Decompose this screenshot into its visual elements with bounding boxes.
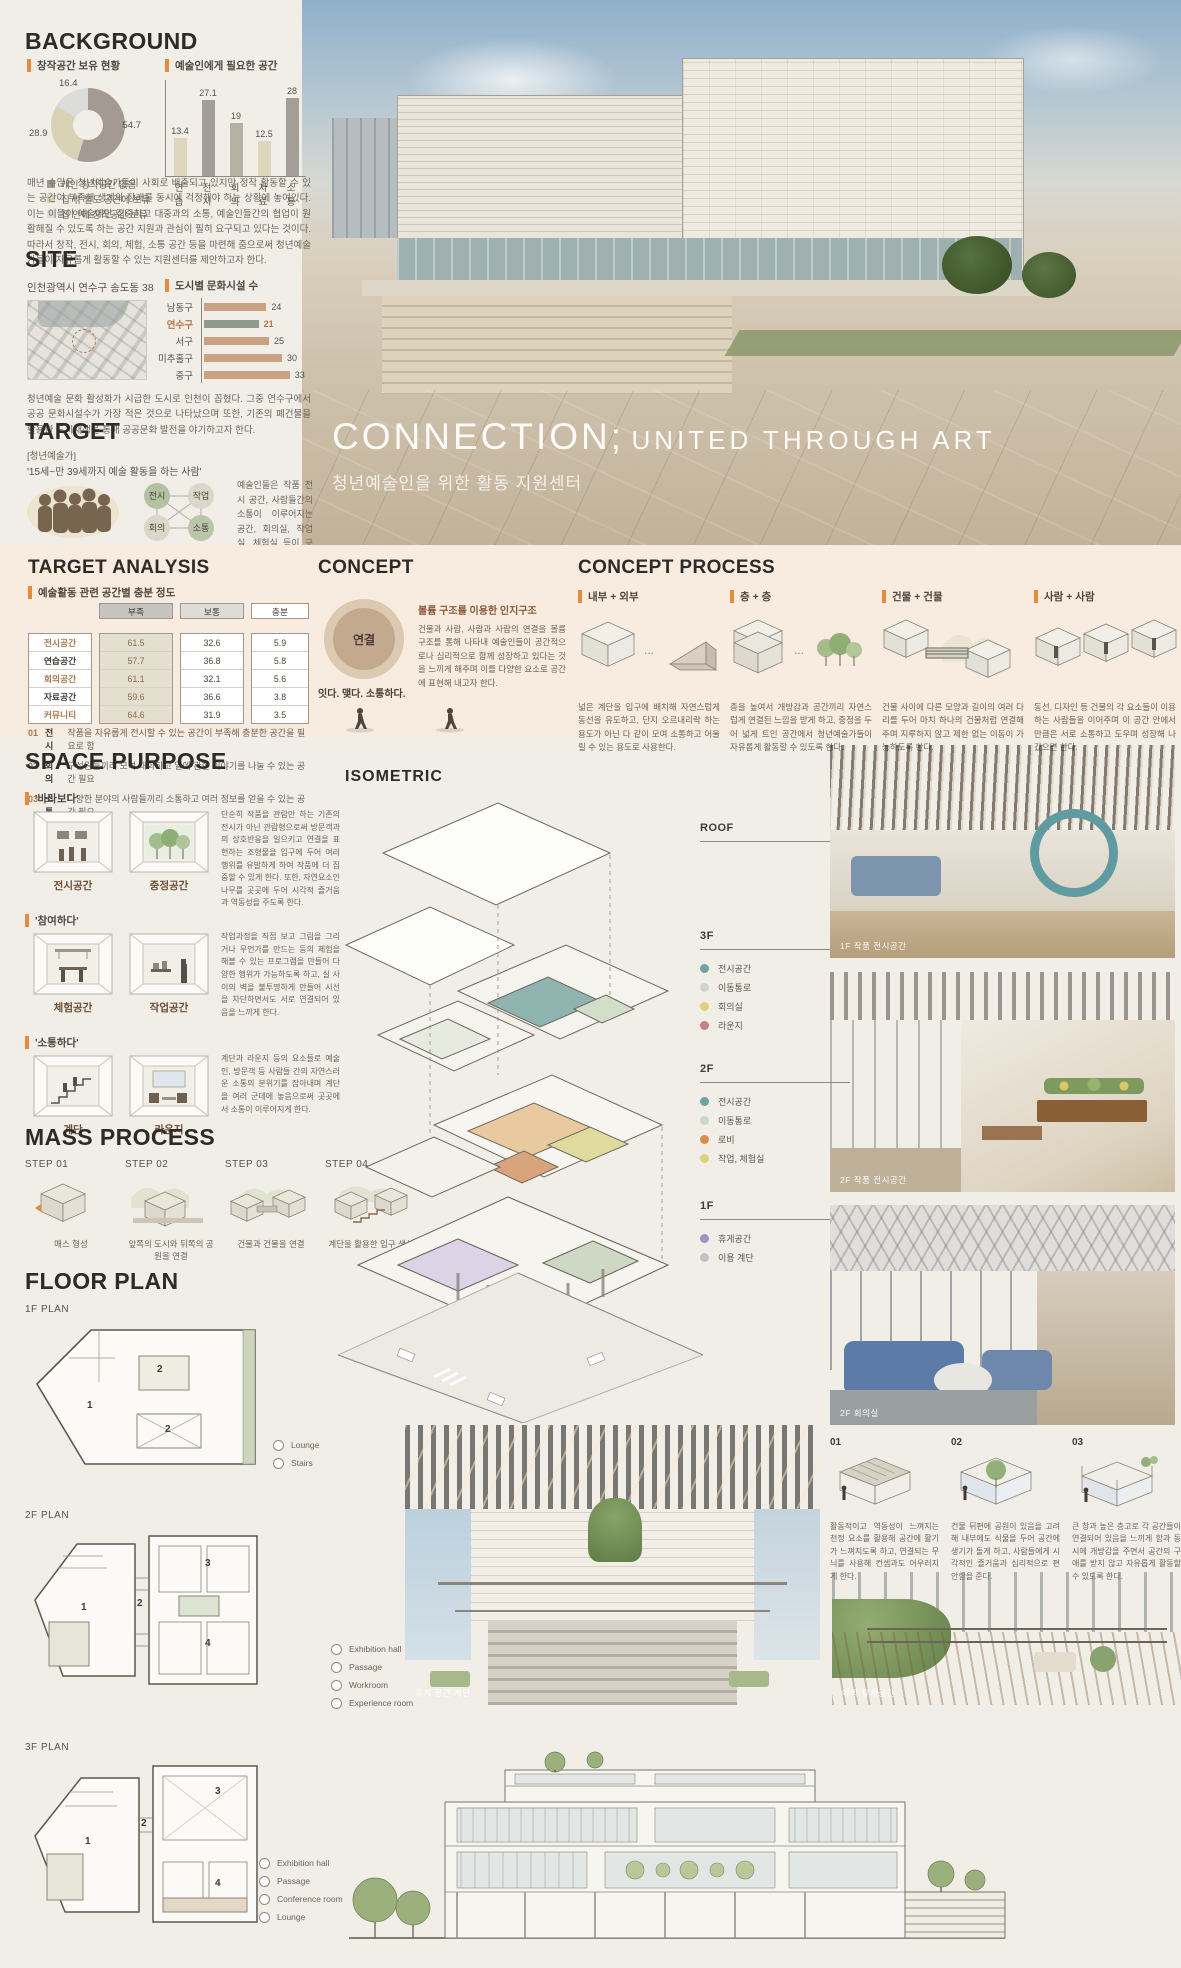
plan-number: 2 — [165, 1424, 171, 1435]
label-marker — [25, 1036, 29, 1049]
label-marker — [882, 590, 886, 603]
group-text: 작업과정을 직접 보고 그림을 그리거나 무언가를 만드는 등의 체험을 해볼 … — [221, 931, 340, 1019]
legend-dot — [700, 1253, 709, 1262]
needed-chart-label: 예술인에게 필요한 공간 — [165, 58, 315, 73]
facility-bar-chart: 남동구24연수구21서구25미추홀구30중구33 — [155, 298, 315, 383]
plan-legend-icon — [259, 1894, 270, 1905]
plan-legend-icon — [331, 1680, 342, 1691]
site-marker — [72, 329, 96, 353]
step-label: STEP 01 — [25, 1159, 117, 1170]
plan-legend-label: Lounge — [277, 1912, 305, 1922]
bar-rect — [202, 100, 215, 176]
concept-process-title: CONCEPT PROCESS — [578, 557, 1178, 579]
level-name: ROOF — [700, 822, 734, 834]
room-sketch-drawing — [33, 811, 113, 878]
plan-legend-label: Passage — [349, 1662, 382, 1672]
process-item-label: 건물 + 건물 — [882, 589, 1024, 604]
facility-bar — [204, 371, 290, 379]
facility-bar-row: 서구25 — [155, 332, 315, 349]
bar-rect — [258, 141, 271, 176]
legend-dot — [700, 1135, 709, 1144]
table-cell: 36.8 — [181, 652, 243, 670]
table-column: 5.95.85.63.83.5 — [251, 633, 309, 724]
legend-dot — [700, 1234, 709, 1243]
detail-diagram — [830, 1454, 939, 1515]
process-text: 넓은 계단을 입구에 배치해 자연스럽게 동선을 유도하고, 단지 오르내리락 … — [578, 701, 720, 755]
svg-text:회의: 회의 — [149, 523, 166, 533]
plan-legend-icon — [331, 1698, 342, 1709]
legend-dot — [700, 1154, 709, 1163]
plan-1f-label: 1F PLAN — [25, 1304, 69, 1315]
svg-text:...: ... — [794, 643, 804, 657]
concept-process-item: 층 + 층 ... 층을 높여서 개방감과 공간끼리 자연스럽게 연결된 느낌을… — [730, 589, 872, 755]
process-label-text: 층 + 층 — [740, 589, 771, 604]
concept-paragraph: 건물과 사람, 사람과 사람의 연결을 볼륨 구조를 통해 나타내 예술인들이 … — [418, 623, 566, 690]
process-item-label: 층 + 층 — [730, 589, 872, 604]
mass-step: STEP 01 매스 형성 — [25, 1159, 117, 1263]
group-quote-label: '소통하다' — [25, 1035, 340, 1050]
section-space-purpose: SPACE PURPOSE '바라보다' 전시공간 중정공간단순히 작품을 관람… — [25, 748, 340, 1135]
level-name: 3F — [700, 930, 714, 942]
table-cell: 61.1 — [100, 670, 172, 688]
photo-exhibition-1f: 1F 작품 전시공간 — [830, 745, 1175, 958]
plan-legend-label: Passage — [277, 1876, 310, 1886]
plan-legend-item: Exhibition hall — [331, 1640, 413, 1658]
process-diagram: ... — [730, 618, 872, 689]
photo-atrium-stairs: 휴게 공간 계단 — [405, 1425, 820, 1705]
space-purpose-group: '소통하다' 계단 라운지계단과 라운지 등의 요소들로 예술인, 방문객 등 … — [25, 1035, 340, 1135]
step-diagram — [25, 1178, 117, 1235]
room-label: 체험공간 — [33, 1000, 113, 1015]
label-marker — [25, 792, 29, 805]
space-purpose-group: '참여하다' 체험공간 작업공간작업과정을 직접 보고 그림을 그리거나 무언가… — [25, 913, 340, 1013]
step-label: STEP 03 — [225, 1159, 317, 1170]
photo-exhibition-2f: 2F 작품 전시공간 — [830, 972, 1175, 1192]
facility-category: 남동구 — [155, 300, 201, 314]
label-marker — [27, 59, 31, 72]
row-label: 자료공간 — [29, 688, 91, 706]
concept-process-item: 내부 + 외부 ... 넓은 계단을 입구에 배치해 자연스럽게 동선을 유도하… — [578, 589, 720, 755]
plan-number: 4 — [205, 1638, 211, 1649]
legend-label: 전시공간 — [718, 1095, 751, 1108]
plan-3f-label: 3F PLAN — [25, 1742, 69, 1753]
room-label: 작업공간 — [129, 1000, 209, 1015]
concept-process-items: 내부 + 외부 ... 넓은 계단을 입구에 배치해 자연스럽게 동선을 유도하… — [578, 589, 1178, 755]
donut-value-1: 54.7 — [123, 120, 142, 131]
facility-value: 33 — [295, 370, 305, 380]
legend-dot — [700, 1116, 709, 1125]
process-label-text: 내부 + 외부 — [588, 589, 639, 604]
level-name: 2F — [700, 1063, 714, 1075]
hero-lawn — [724, 330, 1181, 356]
section-site: SITE 인천광역시 연수구 송도동 38 도시별 문화시설 수 남동구24연수… — [25, 246, 313, 273]
facility-bar-track: 21 — [201, 315, 315, 332]
facility-chart-label: 도시별 문화시설 수 — [165, 278, 258, 293]
sufficiency-table: 부족보통충분전시공간연습공간회의공간자료공간커뮤니티61.557.761.159… — [28, 603, 313, 724]
step-caption: 매스 형성 — [25, 1239, 117, 1251]
legend-dot — [700, 964, 709, 973]
plan-legend-label: Conference room — [277, 1894, 343, 1904]
plan-2f-legend: Exhibition hallPassageWorkroomExperience… — [331, 1640, 413, 1712]
facility-bar — [204, 320, 259, 328]
table-header: 부족 — [99, 603, 173, 619]
background-title: BACKGROUND — [25, 28, 313, 55]
room-sketch-drawing — [129, 811, 209, 878]
plan-legend-label: Stairs — [291, 1458, 313, 1468]
ownership-donut-chart — [51, 88, 125, 162]
plan-3f-drawing: 1 2 3 4 — [29, 1758, 261, 1935]
bar-value: 19 — [231, 111, 241, 121]
people-icon — [25, 482, 121, 545]
group-quote-label: '바라보다' — [25, 791, 340, 806]
isometric-drawing — [338, 795, 703, 1428]
detail-diagram — [1072, 1454, 1181, 1515]
plan-number: 1 — [87, 1400, 93, 1411]
facility-bar-track: 24 — [201, 298, 315, 315]
room-sketch: 작업공간 — [129, 933, 209, 1015]
plan-legend-icon — [331, 1644, 342, 1655]
plan-legend-item: Workroom — [331, 1676, 413, 1694]
detail-item: 01 활동적이고 역동성이 느껴지는 천정 요소를 활용해 공간에 활기가 느껴… — [830, 1437, 939, 1583]
table-corner-spacer — [28, 603, 92, 626]
facility-category: 중구 — [155, 368, 201, 382]
legend-label: 이동통로 — [718, 1114, 751, 1127]
process-diagram — [1034, 618, 1176, 689]
section-target-analysis: TARGET ANALYSIS 예술활동 관련 공간별 충분 정도 부족보통충분… — [28, 557, 313, 600]
room-sketch-drawing — [33, 1055, 113, 1122]
plan-legend-label: Workroom — [349, 1680, 388, 1690]
group-quote: '소통하다' — [35, 1035, 79, 1050]
site-title: SITE — [25, 246, 313, 273]
photo-caption: 야외 휴게공간 — [842, 1687, 895, 1699]
concept-process-item: 건물 + 건물 건물 사이에 다른 모양과 길이의 여러 다리를 두어 마치 하… — [882, 589, 1024, 755]
level-rule — [700, 949, 850, 950]
room-sketch: 전시공간 — [33, 811, 113, 893]
bar-rect — [230, 123, 243, 176]
plan-number: 2 — [157, 1364, 163, 1375]
plan-2f-label: 2F PLAN — [25, 1510, 69, 1521]
plan-legend-icon — [259, 1876, 270, 1887]
plan-number: 2 — [137, 1598, 143, 1609]
plan-1f-drawing: 1 2 2 — [29, 1322, 261, 1477]
concept-tagline: 잇다. 맺다. 소통하다. — [318, 685, 406, 700]
facility-bar-row: 남동구24 — [155, 298, 315, 315]
plan-legend-item: Passage — [331, 1658, 413, 1676]
hero-tree-1 — [942, 236, 1012, 294]
target-analysis-label: 예술활동 관련 공간별 충분 정도 — [28, 585, 313, 600]
photo-caption: 2F 작품 전시공간 — [840, 1174, 907, 1186]
facility-value: 21 — [264, 319, 274, 329]
facility-category: 미추홀구 — [155, 351, 201, 365]
plan-legend-item: Conference room — [259, 1890, 343, 1908]
plan-legend-label: Exhibition hall — [349, 1644, 401, 1654]
section-background: BACKGROUND 창작공간 보유 현황 54.7 28.9 16.4 개인 … — [25, 28, 313, 55]
plan-number: 1 — [85, 1836, 91, 1847]
process-item-label: 내부 + 외부 — [578, 589, 720, 604]
row-label: 연습공간 — [29, 652, 91, 670]
group-quote: '참여하다' — [35, 913, 79, 928]
isometric-title: ISOMETRIC — [345, 768, 443, 786]
room-label: 전시공간 — [33, 878, 113, 893]
plan-legend-label: Experience room — [349, 1698, 413, 1708]
facility-bar-row: 미추홀구30 — [155, 349, 315, 366]
plan-legend-icon — [273, 1440, 284, 1451]
site-map — [27, 300, 147, 380]
level-rule — [700, 1082, 850, 1083]
facility-bar — [204, 337, 269, 345]
bar-rect — [286, 98, 299, 176]
label-marker — [1034, 590, 1038, 603]
step-label: STEP 02 — [125, 1159, 217, 1170]
concept-circle: 연결 — [324, 599, 404, 679]
target-bracket: [청년예술가] — [27, 448, 76, 462]
room-sketch: 체험공간 — [33, 933, 113, 1015]
detail-item: 03 큰 창과 높은 층고로 각 공간들이 연결되어 있음을 느끼게 함과 동시… — [1072, 1437, 1181, 1583]
room-sketch-drawing — [129, 1055, 209, 1122]
row-label: 전시공간 — [29, 634, 91, 652]
legend-label: 전시공간 — [718, 962, 751, 975]
process-label-text: 사람 + 사람 — [1044, 589, 1095, 604]
hero-title-sub: UNITED THROUGH ART — [631, 425, 995, 455]
bar-value: 28 — [287, 86, 297, 96]
hero-title-block: CONNECTION; UNITED THROUGH ART 청년예술인을 위한… — [332, 418, 996, 494]
bar-rect — [174, 138, 187, 176]
table-cell: 5.6 — [252, 670, 308, 688]
bar: 19 — [228, 111, 244, 176]
map-river — [38, 301, 128, 327]
level-rule — [700, 841, 850, 842]
photo-outdoor-lounge: 야외 휴게공간 — [832, 1572, 1181, 1705]
hero-steps — [382, 296, 732, 394]
photo-caption: 1F 작품 전시공간 — [840, 940, 907, 952]
facility-value: 25 — [274, 336, 284, 346]
table-cell: 59.6 — [100, 688, 172, 706]
detail-diagrams: 01 활동적이고 역동성이 느껴지는 천정 요소를 활용해 공간에 활기가 느껴… — [830, 1437, 1181, 1583]
facility-category: 연수구 — [155, 317, 201, 331]
hero-subtitle: 청년예술인을 위한 활동 지원센터 — [332, 469, 996, 494]
plan-legend-icon — [331, 1662, 342, 1673]
mass-step: STEP 02 앞쪽의 도시와 뒤쪽의 공원을 연결 — [125, 1159, 217, 1263]
plan-1f-legend: LoungeStairs — [273, 1436, 319, 1472]
group-quote: '바라보다' — [35, 791, 79, 806]
elevation-drawing — [345, 1742, 1010, 1963]
legend-dot — [700, 1097, 709, 1106]
plan-number: 1 — [81, 1602, 87, 1613]
step-caption: 앞쪽의 도시와 뒤쪽의 공원을 연결 — [125, 1239, 217, 1263]
facility-category: 서구 — [155, 334, 201, 348]
label-marker — [28, 586, 32, 599]
legend-label: 이용 계단 — [718, 1251, 754, 1264]
photo-caption: 2F 회의실 — [840, 1407, 879, 1419]
photo-caption: 휴게 공간 계단 — [415, 1687, 471, 1699]
legend-label: 라운지 — [718, 1019, 743, 1032]
plan-2f-drawing: 1 2 3 4 — [29, 1526, 261, 1699]
plan-legend-item: Passage — [259, 1872, 343, 1890]
space-purpose-title: SPACE PURPOSE — [25, 748, 340, 775]
donut-chart-label: 창작공간 보유 현황 — [27, 58, 157, 73]
process-item-label: 사람 + 사람 — [1034, 589, 1176, 604]
legend-dot — [700, 1021, 709, 1030]
group-text: 계단과 라운지 등의 요소들로 예술인, 방문객 등 사람들 간의 자연스러운 … — [221, 1053, 340, 1116]
concept-process-item: 사람 + 사람 동선, 디자인 등 건물의 각 요소들이 이용하는 사람들을 이… — [1034, 589, 1176, 755]
facility-bar-track: 33 — [201, 366, 315, 383]
concept-title: CONCEPT — [318, 557, 566, 579]
hero-glass-band — [397, 238, 1022, 280]
label-marker — [730, 590, 734, 603]
plan-legend-item: Experience room — [331, 1694, 413, 1712]
concept-heading: 볼륨 구조를 이용한 인지구조 — [418, 602, 566, 617]
row-label: 회의공간 — [29, 670, 91, 688]
mass-step: STEP 03 건물과 건물을 연결 — [225, 1159, 317, 1263]
bar: 27.1 — [200, 88, 216, 176]
table-cell: 36.6 — [181, 688, 243, 706]
hero-title-main: CONNECTION; — [332, 416, 624, 457]
label-marker — [578, 590, 582, 603]
facility-bar — [204, 354, 282, 362]
room-sketch: 중정공간 — [129, 811, 209, 893]
group-quote-label: '참여하다' — [25, 913, 340, 928]
legend-dot — [700, 1002, 709, 1011]
plan-legend-label: Lounge — [291, 1440, 319, 1450]
bar: 13.4 — [172, 126, 188, 176]
detail-number: 03 — [1072, 1437, 1181, 1448]
target-title: TARGET — [25, 418, 313, 445]
section-concept-process: CONCEPT PROCESS 내부 + 외부 ... 넓은 계단을 입구에 배… — [578, 557, 1178, 755]
plan-legend-item: Stairs — [273, 1454, 319, 1472]
space-purpose-group: '바라보다' 전시공간 중정공간단순히 작품을 관람만 하는 기존의 전시가 아… — [25, 791, 340, 891]
detail-number: 01 — [830, 1437, 939, 1448]
table-cell: 32.6 — [181, 634, 243, 652]
plan-legend-item: Exhibition hall — [259, 1854, 343, 1872]
step-diagram — [125, 1178, 217, 1235]
bar-value: 27.1 — [199, 88, 217, 98]
plan-legend-item: Lounge — [259, 1908, 343, 1926]
space-purpose-groups: '바라보다' 전시공간 중정공간단순히 작품을 관람만 하는 기존의 전시가 아… — [25, 791, 340, 1135]
target-quote: '15세~만 39세까지 예술 활동을 하는 사람' — [27, 463, 202, 478]
room-label: 중정공간 — [129, 878, 209, 893]
step-diagram — [225, 1178, 317, 1235]
table-cell: 5.9 — [252, 634, 308, 652]
section-target: TARGET [청년예술가] '15세~만 39세까지 예술 활동을 하는 사람… — [25, 418, 313, 445]
presentation-board: CONNECTION; UNITED THROUGH ART 청년예술인을 위한… — [0, 0, 1181, 1968]
table-header: 보통 — [180, 603, 244, 619]
hero-title: CONNECTION; UNITED THROUGH ART — [332, 418, 996, 455]
target-network-diagram: 전시작업 회의소통 — [133, 480, 225, 549]
bar-value: 13.4 — [171, 126, 189, 136]
group-text: 단순히 작품을 관람만 하는 기존의 전시가 아닌 관람형으로써 방문객과의 상… — [221, 809, 340, 910]
plan-legend-icon — [259, 1912, 270, 1923]
room-sketch-drawing — [33, 933, 113, 1000]
legend-label: 작업, 체험실 — [718, 1152, 764, 1165]
bar: 28 — [284, 86, 300, 176]
donut-value-2: 28.9 — [29, 128, 48, 139]
facility-bar-row: 중구33 — [155, 366, 315, 383]
table-cell: 3.8 — [252, 688, 308, 706]
facility-bar-track: 25 — [201, 332, 315, 349]
detail-item: 02 건물 뒤편에 공원이 있음을 고려해 내부에도 식물을 두어 공간에 생기… — [951, 1437, 1060, 1583]
facility-value: 30 — [287, 353, 297, 363]
plan-legend-item: Lounge — [273, 1436, 319, 1454]
facility-bar — [204, 303, 266, 311]
svg-text:...: ... — [644, 643, 654, 657]
svg-text:소통: 소통 — [193, 523, 210, 533]
detail-diagram — [951, 1454, 1060, 1515]
table-row-labels: 전시공간연습공간회의공간자료공간커뮤니티 — [28, 633, 92, 724]
table-cell: 57.7 — [100, 652, 172, 670]
facility-bar-track: 30 — [201, 349, 315, 366]
legend-label: 이동통로 — [718, 981, 751, 994]
label-marker — [25, 914, 29, 927]
photo-conference-2f: 2F 회의실 — [830, 1205, 1175, 1425]
donut-value-3: 16.4 — [59, 78, 78, 89]
room-sketch-drawing — [129, 933, 209, 1000]
facility-value: 24 — [271, 302, 281, 312]
level-name: 1F — [700, 1200, 714, 1212]
section-concept: CONCEPT 연결 잇다. 맺다. 소통하다. 볼륨 구조를 이용한 인지구조… — [318, 557, 566, 579]
legend-label: 휴게공간 — [718, 1232, 751, 1245]
table-column: 32.636.832.136.631.9 — [180, 633, 244, 724]
needed-space-bar-chart: 13.427.11912.528 — [165, 80, 306, 177]
table-header: 충분 — [251, 603, 309, 619]
process-label-text: 건물 + 건물 — [892, 589, 943, 604]
table-cell: 61.5 — [100, 634, 172, 652]
bar: 12.5 — [256, 129, 272, 176]
label-marker — [165, 279, 169, 292]
plan-number: 3 — [215, 1786, 221, 1797]
svg-text:작업: 작업 — [193, 491, 210, 501]
svg-text:전시: 전시 — [149, 491, 166, 501]
table-column: 61.557.761.159.664.6 — [99, 633, 173, 724]
plan-legend-icon — [259, 1858, 270, 1869]
note-number: 01 — [28, 728, 38, 738]
plan-3f-legend: Exhibition hallPassageConference roomLou… — [259, 1854, 343, 1926]
plan-legend-label: Exhibition hall — [277, 1858, 329, 1868]
hero-tree-2 — [1022, 252, 1076, 298]
plan-number: 4 — [215, 1878, 221, 1889]
plan-number: 3 — [205, 1558, 211, 1569]
bar-value: 12.5 — [255, 129, 273, 139]
level-rule — [700, 1219, 850, 1220]
site-address: 인천광역시 연수구 송도동 38 — [27, 280, 154, 295]
process-diagram — [882, 618, 1024, 689]
label-marker — [165, 59, 169, 72]
walking-figures-icon — [338, 707, 498, 738]
plan-number: 2 — [141, 1818, 147, 1829]
table-cell: 5.8 — [252, 652, 308, 670]
step-caption: 건물과 건물을 연결 — [225, 1239, 317, 1251]
plan-legend-icon — [273, 1458, 284, 1469]
hero-render: CONNECTION; UNITED THROUGH ART 청년예술인을 위한… — [302, 0, 1181, 545]
table-cell: 32.1 — [181, 670, 243, 688]
detail-number: 02 — [951, 1437, 1060, 1448]
legend-dot — [700, 983, 709, 992]
legend-label: 회의실 — [718, 1000, 743, 1013]
target-analysis-title: TARGET ANALYSIS — [28, 557, 313, 579]
process-diagram: ... — [578, 618, 720, 689]
facility-bar-row: 연수구21 — [155, 315, 315, 332]
legend-label: 로비 — [718, 1133, 735, 1146]
